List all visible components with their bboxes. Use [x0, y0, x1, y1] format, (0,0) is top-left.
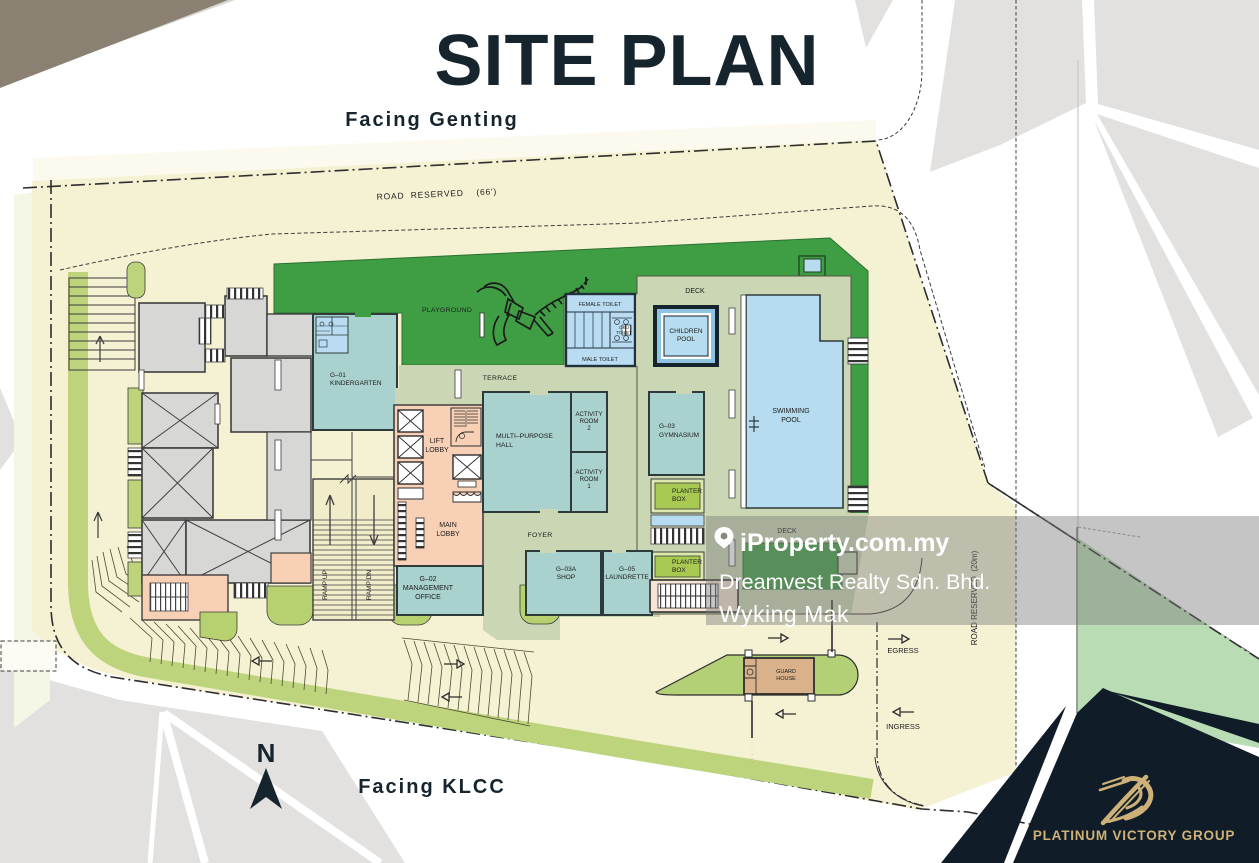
svg-text:MANAGEMENT: MANAGEMENT: [403, 585, 454, 592]
svg-text:G–01: G–01: [330, 372, 346, 379]
svg-text:G–03: G–03: [659, 423, 675, 430]
svg-text:MULTI–PURPOSE: MULTI–PURPOSE: [496, 433, 553, 440]
svg-text:TOILET: TOILET: [616, 330, 632, 335]
svg-text:LOBBY: LOBBY: [425, 447, 449, 454]
svg-text:SWIMMING: SWIMMING: [772, 408, 809, 415]
svg-text:RAMP UP: RAMP UP: [322, 570, 329, 600]
svg-text:ROOM: ROOM: [580, 477, 599, 483]
svg-text:HOUSE: HOUSE: [776, 676, 796, 682]
svg-text:GUARD: GUARD: [776, 669, 796, 675]
svg-text:BOX: BOX: [672, 567, 686, 574]
svg-text:Facing KLCC: Facing KLCC: [358, 776, 506, 798]
svg-text:ACTIVITY: ACTIVITY: [575, 412, 602, 418]
svg-text:POOL: POOL: [677, 336, 695, 343]
svg-text:FEMALE TOILET: FEMALE TOILET: [579, 302, 622, 308]
svg-text:G–03A: G–03A: [556, 566, 577, 573]
svg-text:FOYER: FOYER: [528, 532, 553, 539]
svg-text:KINDERGARTEN: KINDERGARTEN: [330, 380, 382, 387]
svg-text:PLANTER: PLANTER: [672, 488, 702, 495]
svg-text:G–05: G–05: [619, 566, 635, 573]
svg-text:MALE TOILET: MALE TOILET: [582, 357, 618, 363]
svg-text:Facing Genting: Facing Genting: [345, 109, 519, 131]
svg-text:PLANTER: PLANTER: [672, 559, 702, 566]
svg-text:G–02: G–02: [419, 576, 436, 583]
svg-text:GYMNASIUM: GYMNASIUM: [659, 432, 699, 439]
svg-text:SITE PLAN: SITE PLAN: [434, 21, 819, 101]
svg-text:INGRESS: INGRESS: [886, 722, 920, 731]
svg-text:DECK: DECK: [685, 288, 705, 295]
svg-text:PLATINUM VICTORY GROUP: PLATINUM VICTORY GROUP: [1033, 828, 1235, 843]
svg-text:Dreamvest Realty Sdn. Bhd.: Dreamvest Realty Sdn. Bhd.: [719, 570, 990, 594]
svg-text:iProperty.com.my: iProperty.com.my: [740, 529, 949, 557]
svg-text:CHILDREN: CHILDREN: [669, 328, 703, 335]
svg-text:N: N: [257, 738, 276, 768]
svg-text:LOBBY: LOBBY: [436, 531, 460, 538]
svg-text:Wyking Mak: Wyking Mak: [719, 601, 849, 627]
svg-text:PLAYGROUND: PLAYGROUND: [422, 307, 472, 314]
svg-text:ACTIVITY: ACTIVITY: [575, 470, 602, 476]
svg-text:MAIN: MAIN: [439, 522, 457, 529]
svg-text:LAUNDRETTE: LAUNDRETTE: [605, 574, 649, 581]
svg-text:HALL: HALL: [496, 442, 513, 449]
svg-text:LIFT: LIFT: [430, 438, 445, 445]
svg-text:SHOP: SHOP: [557, 574, 575, 581]
svg-text:BOX: BOX: [672, 496, 686, 503]
svg-text:POOL: POOL: [781, 417, 801, 424]
svg-text:TERRACE: TERRACE: [483, 375, 518, 382]
svg-text:ROOM: ROOM: [580, 419, 599, 425]
svg-text:OFFICE: OFFICE: [415, 594, 441, 601]
svg-text:RAMP DN: RAMP DN: [366, 570, 373, 600]
svg-text:EGRESS: EGRESS: [887, 646, 918, 655]
